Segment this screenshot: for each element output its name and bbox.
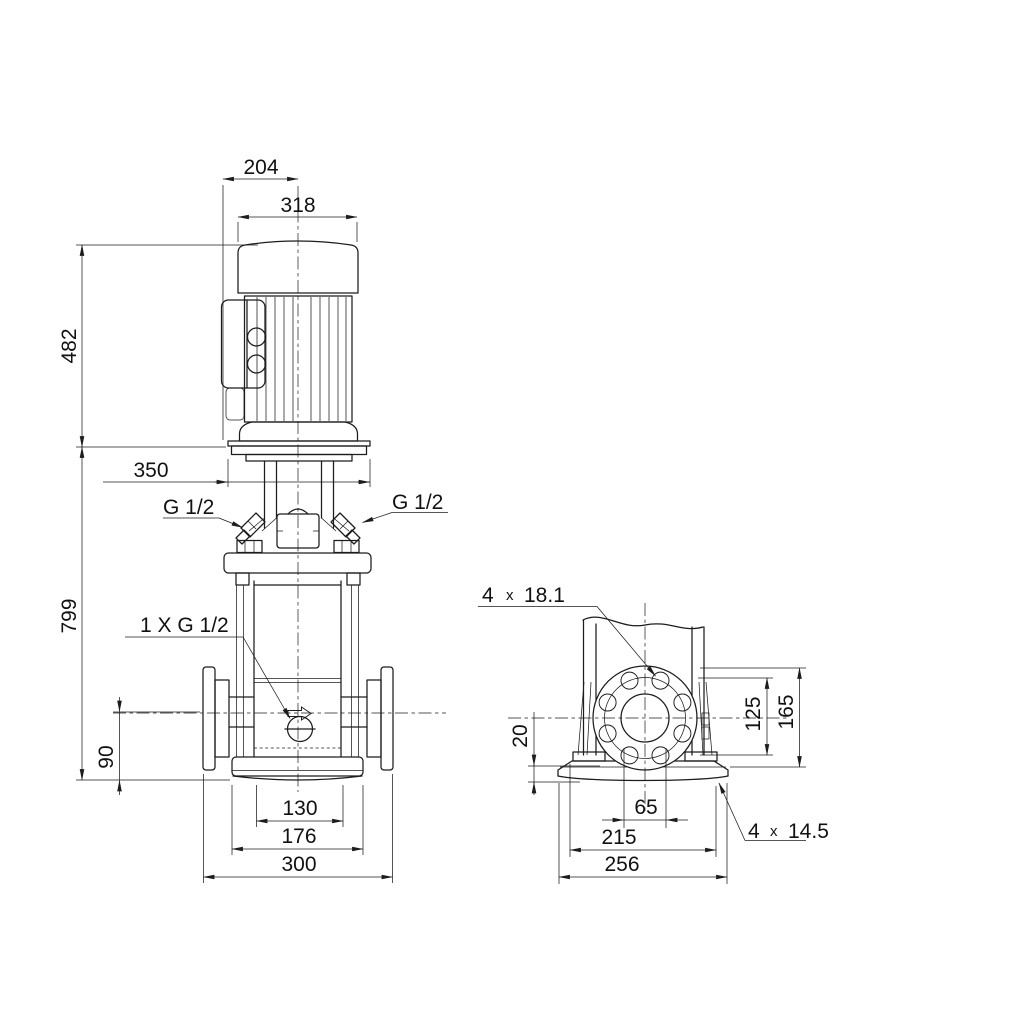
base-holes-diameter: 14.5 bbox=[788, 820, 829, 843]
dim-130: 130 bbox=[257, 785, 344, 827]
dim-165-label: 165 bbox=[775, 694, 798, 729]
dim-20: 20 bbox=[509, 712, 600, 795]
cable-gland-top bbox=[248, 328, 266, 346]
motor-fins bbox=[257, 297, 346, 421]
nameplate-clip bbox=[702, 713, 709, 725]
staybolt-nut-left bbox=[236, 573, 249, 585]
dim-176-label: 176 bbox=[281, 825, 316, 848]
dim-204-label: 204 bbox=[243, 156, 278, 179]
callout-flange-holes: 4 x 18.1 bbox=[478, 584, 656, 676]
flange-holes-times: x bbox=[506, 587, 514, 604]
discharge-flange bbox=[341, 667, 393, 770]
dim-90-label: 90 bbox=[95, 745, 118, 768]
dim-65-label: 65 bbox=[634, 796, 657, 819]
callout-plug-right: G 1/2 bbox=[363, 491, 449, 523]
suction-flange bbox=[203, 667, 254, 770]
dim-300-label: 300 bbox=[281, 853, 316, 876]
dim-350: 350 bbox=[103, 459, 370, 487]
dim-130-label: 130 bbox=[282, 797, 317, 820]
plug-right-label: G 1/2 bbox=[392, 491, 443, 514]
dim-215-label: 215 bbox=[601, 826, 636, 849]
chamber-stack bbox=[237, 581, 359, 757]
terminal-box bbox=[222, 300, 266, 420]
gauge-plug-left bbox=[236, 513, 265, 544]
base-holes-times: x bbox=[770, 823, 778, 840]
dim-482-label: 482 bbox=[58, 328, 81, 363]
flange-holes-count: 4 bbox=[482, 584, 494, 607]
dim-318: 318 bbox=[238, 194, 357, 242]
staybolt-nut-right bbox=[347, 573, 360, 585]
flange-holes-diameter: 18.1 bbox=[524, 584, 565, 607]
pump-dimensional-drawing: 204 318 482 799 90 bbox=[0, 0, 1024, 1024]
dim-350-label: 350 bbox=[133, 459, 168, 482]
callout-drain: 1 X G 1/2 bbox=[125, 614, 290, 719]
dim-799-label: 799 bbox=[58, 598, 81, 633]
dim-256-label: 256 bbox=[604, 853, 639, 876]
base-holes-count: 4 bbox=[748, 820, 760, 843]
front-view: 204 318 482 799 90 bbox=[58, 156, 448, 883]
drain-label: 1 X G 1/2 bbox=[140, 614, 229, 637]
motor-drive-end bbox=[228, 422, 370, 461]
dim-125-label: 125 bbox=[742, 696, 765, 731]
pump-head bbox=[224, 553, 371, 585]
flow-direction-arrow-icon bbox=[288, 707, 311, 720]
dim-20-label: 20 bbox=[509, 724, 532, 747]
dim-482: 482 bbox=[58, 245, 258, 447]
dim-318-label: 318 bbox=[280, 194, 315, 217]
break-line bbox=[583, 617, 703, 628]
pump-base-front bbox=[232, 757, 363, 780]
side-view: 4 x 18.1 165 125 20 bbox=[478, 584, 829, 884]
callout-plug-left: G 1/2 bbox=[163, 496, 243, 528]
drain-plug bbox=[285, 707, 315, 742]
drawing-sheet: 204 318 482 799 90 bbox=[0, 0, 1024, 1024]
callout-base-holes: 4 x 14.5 bbox=[719, 783, 829, 843]
cable-gland-bottom bbox=[248, 355, 266, 373]
plug-left-label: G 1/2 bbox=[163, 496, 214, 519]
